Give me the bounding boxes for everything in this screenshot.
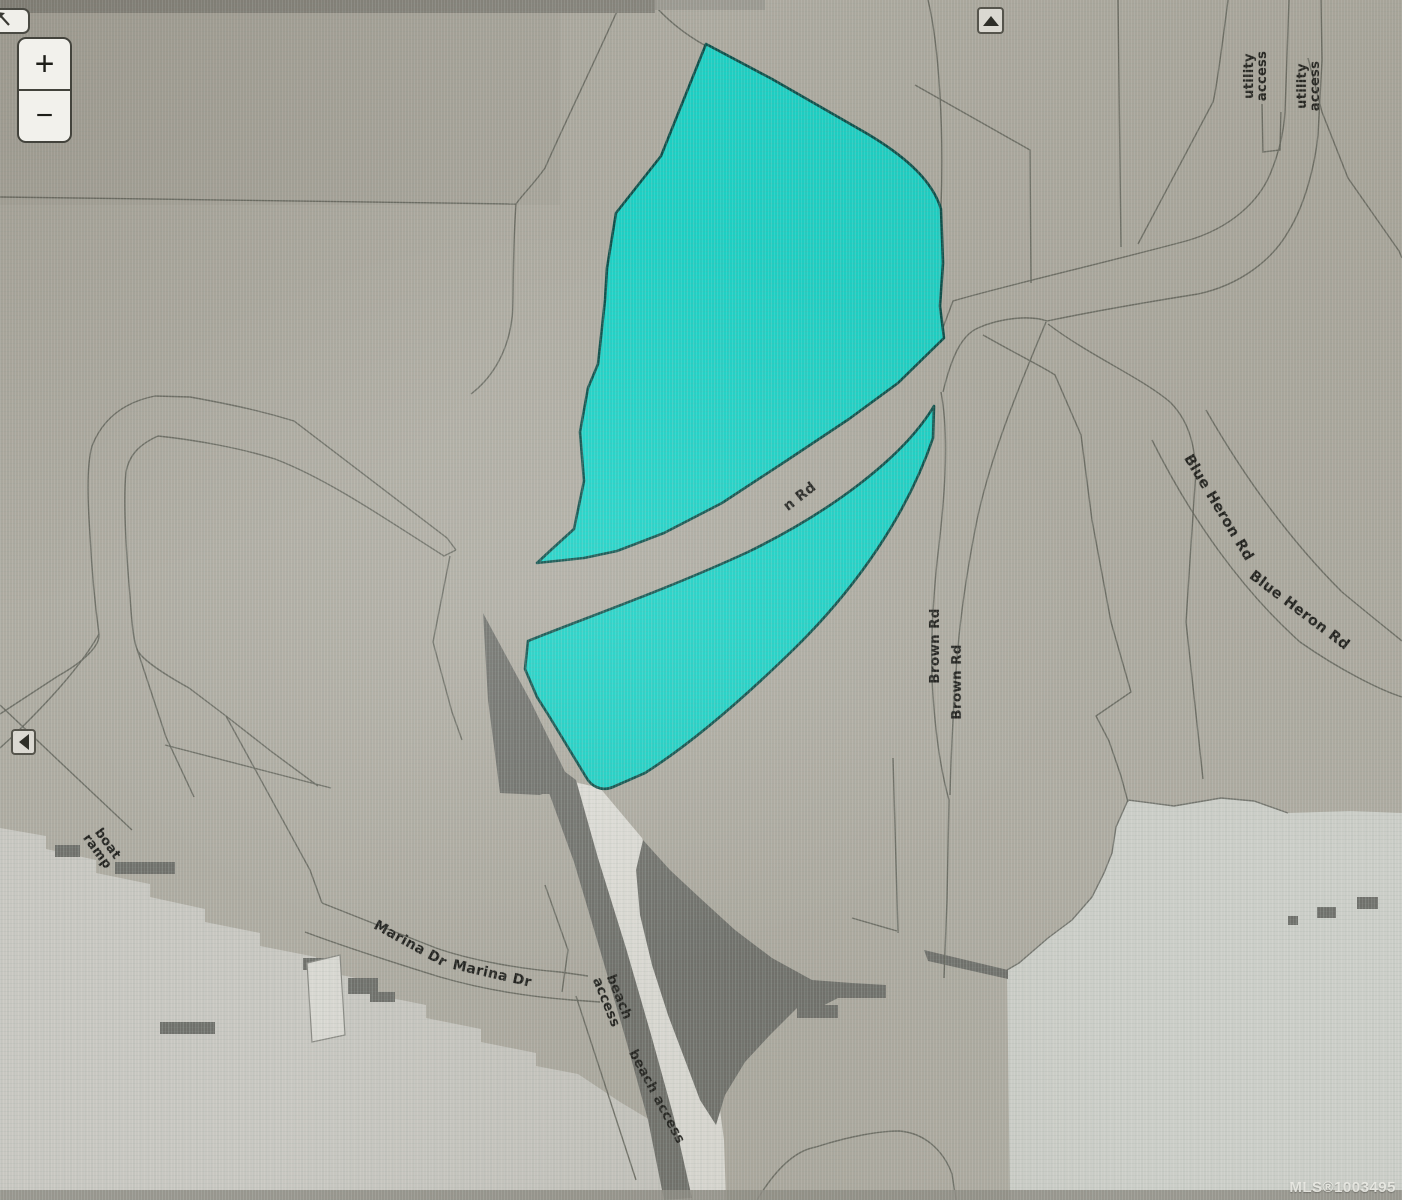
corner-extent-button[interactable] — [0, 8, 30, 34]
road-label-brown-rd-1: Brown Rd — [929, 608, 943, 683]
map-viewer-screen: n Rd Brown Rd Brown Rd Blue Heron Rd Blu… — [0, 0, 1402, 1200]
road-label-brown-rd-2: Brown Rd — [951, 644, 965, 719]
up-arrow-icon — [983, 16, 999, 26]
zoom-out-button[interactable]: − — [17, 89, 72, 143]
left-arrow-icon — [19, 734, 29, 750]
marina-parcel — [307, 955, 345, 1042]
diagonal-arrow-icon — [0, 10, 16, 30]
upper-left-parcel-area — [0, 0, 560, 205]
pan-up-button[interactable] — [977, 7, 1004, 34]
zoom-control: + − — [17, 37, 72, 143]
road-label-utility-access-1: utility access — [1243, 49, 1270, 103]
mls-watermark: MLS®1003495 — [1289, 1179, 1396, 1196]
zoom-in-button[interactable]: + — [17, 37, 72, 91]
bottom-edge-strip — [0, 1190, 1402, 1200]
top-edge-strip — [0, 0, 655, 13]
map-canvas[interactable] — [0, 0, 1402, 1200]
pan-left-button[interactable] — [11, 729, 36, 755]
top-edge-strip-right — [655, 0, 765, 10]
road-label-utility-access-2: utility access — [1296, 59, 1323, 113]
